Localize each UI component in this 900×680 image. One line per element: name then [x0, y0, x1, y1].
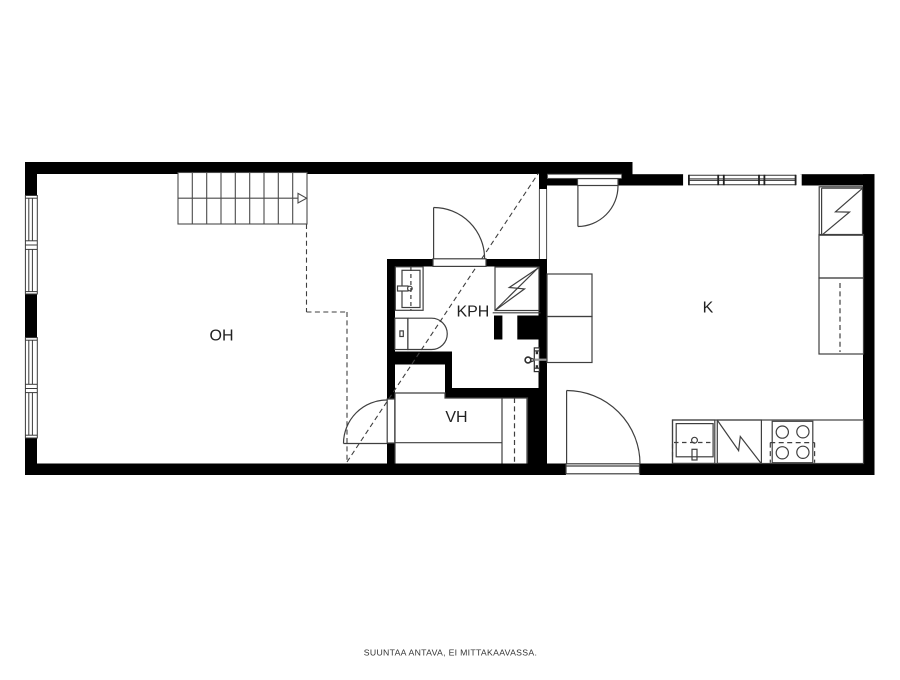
svg-text:VH: VH	[445, 409, 467, 426]
svg-text:SUUNTAA ANTAVA, EI MITTAKAAVAS: SUUNTAA ANTAVA, EI MITTAKAAVASSA.	[364, 647, 537, 657]
svg-text:OH: OH	[210, 327, 234, 344]
svg-text:KPH: KPH	[456, 304, 489, 321]
svg-text:K: K	[703, 299, 714, 316]
